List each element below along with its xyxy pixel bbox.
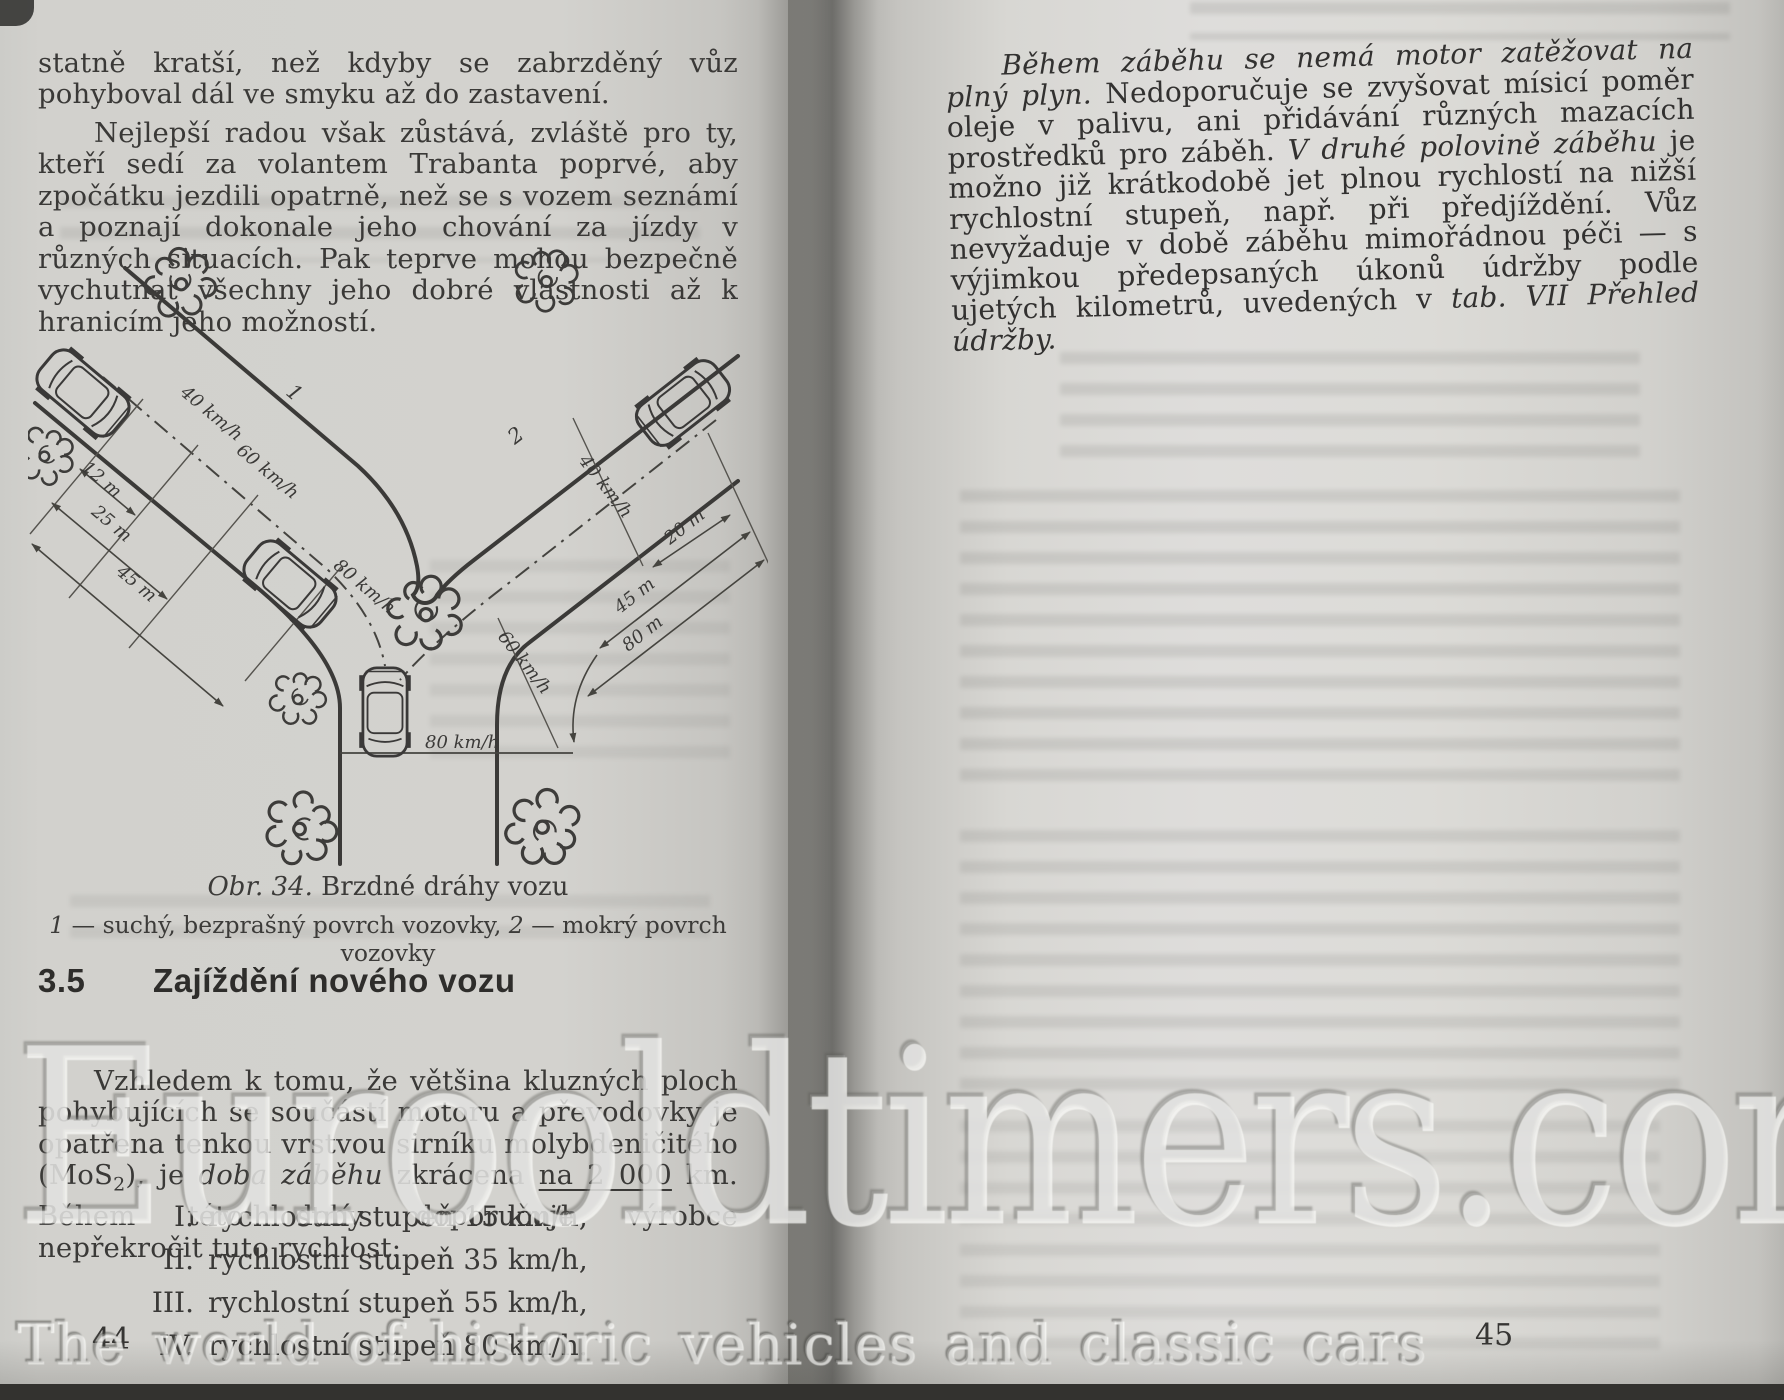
paragraph: statně kratší, než kdyby se zabrzděný vů… <box>38 48 738 111</box>
list-text: rychlostní stupeň 55 km/h, <box>208 1286 588 1319</box>
list-text: rychlostní stupeň 15 km/h, <box>208 1200 588 1233</box>
list-text: rychlostní stupeň 35 km/h, <box>208 1243 588 1276</box>
distance-label: 80 m <box>618 611 667 656</box>
bush-icon <box>496 782 592 868</box>
distance-label: 45 m <box>609 573 659 618</box>
figure-caption: Obr. 34. Brzdné dráhy vozu 1 — suchý, be… <box>36 872 740 967</box>
bush-icon <box>380 567 472 657</box>
scan-bottom-shadow <box>0 1340 1784 1384</box>
car-top-view <box>235 532 345 637</box>
section-number: 3.5 <box>38 962 85 999</box>
distance-label: 25 m <box>87 500 136 546</box>
road-edges <box>35 268 738 864</box>
speed-label: 80 km/h <box>329 555 399 619</box>
legend-key-2: 2 <box>509 911 524 939</box>
bush-icon <box>145 248 215 316</box>
section-title: Zajíždění nového vozu <box>153 962 516 999</box>
figure-braking-distances: 1 2 40 km/h 60 km/h 80 km/h 12 m 25 m 45… <box>28 228 768 868</box>
paragraph: Vzhledem k tomu, že většina kluzných plo… <box>38 1066 738 1265</box>
scan-bottom-edge <box>0 1384 1784 1400</box>
list-item: III.rychlostní stupeň 55 km/h, <box>128 1286 588 1319</box>
subscript: 2 <box>113 1174 125 1196</box>
speed-label: 40 km/h <box>176 381 247 445</box>
speed-label: 60 km/h <box>232 440 302 504</box>
list-item: II.rychlostní stupeň 35 km/h, <box>128 1243 588 1276</box>
list-numeral: III. <box>128 1286 194 1319</box>
figure-number: Obr. 34. <box>207 872 312 902</box>
figure-title: Brzdné dráhy vozu <box>313 872 569 902</box>
figure-caption-title: Obr. 34. Brzdné dráhy vozu <box>36 872 740 902</box>
emphasis-text: doba záběhu <box>198 1159 382 1191</box>
car-top-view <box>359 668 411 756</box>
bleedthrough-text <box>960 490 1680 800</box>
bush-icon <box>260 659 338 737</box>
bleedthrough-text <box>960 1120 1660 1360</box>
legend-key-1: 1 <box>49 911 64 939</box>
body-text: ), je <box>125 1159 198 1191</box>
list-numeral: II. <box>128 1243 194 1276</box>
distance-label: 45 m <box>112 560 161 606</box>
speed-label: 80 km/h <box>425 732 499 753</box>
list-numeral: I. <box>128 1200 194 1233</box>
surface-2-label: 2 <box>502 422 528 450</box>
paragraph: Během záběhu se nemá motor zatěžovat na … <box>945 34 1700 357</box>
body-text: zkrácena <box>383 1159 539 1191</box>
bush-icon <box>261 787 343 868</box>
list-item: I.rychlostní stupeň 15 km/h, <box>128 1200 588 1233</box>
underlined-text: na 2 000 <box>539 1159 672 1191</box>
figure-caption-legend: 1 — suchý, bezprašný povrch vozovky, 2 —… <box>36 911 740 967</box>
distance-label: 12 m <box>77 457 126 502</box>
car-top-view <box>28 341 138 446</box>
bush-icon <box>503 236 590 322</box>
page-gutter-shadow <box>758 0 878 1400</box>
section-heading: 3.5 Zajíždění nového vozu <box>38 962 516 1000</box>
scanned-book-spread: statně kratší, než kdyby se zabrzděný vů… <box>0 0 1784 1400</box>
bleedthrough-text <box>960 830 1680 1100</box>
legend-value-1: — suchý, bezprašný povrch vozovky, <box>64 911 509 939</box>
bleedthrough-text <box>1060 352 1640 462</box>
